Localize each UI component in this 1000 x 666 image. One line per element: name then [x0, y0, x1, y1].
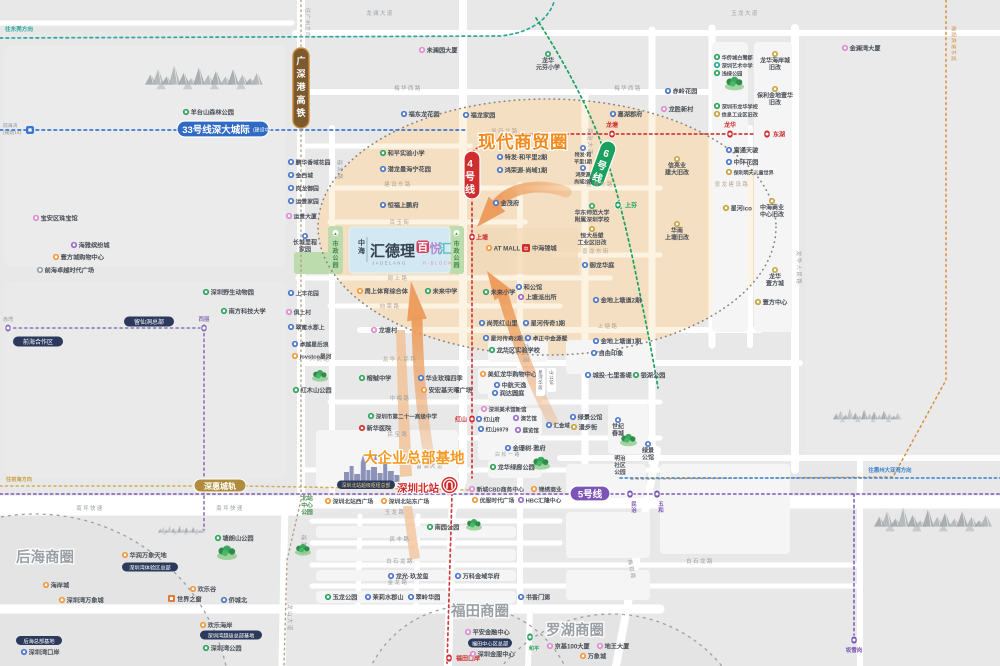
svg-text:南园公园: 南园公园	[435, 523, 460, 531]
svg-text:景龙建设路: 景龙建设路	[715, 180, 749, 188]
svg-text:世纪: 世纪	[612, 423, 624, 431]
svg-text:龙山大道: 龙山大道	[286, 604, 294, 632]
svg-text:赤岭花园: 赤岭花园	[673, 87, 698, 95]
svg-text:信息工业区旧改: 信息工业区旧改	[722, 110, 759, 118]
svg-text:市政公园: 市政公园	[453, 240, 460, 269]
svg-text:梅华西路: 梅华西路	[394, 84, 422, 92]
svg-text:金澜湾大厦: 金澜湾大厦	[849, 44, 882, 52]
svg-text:尚莞红山里: 尚莞红山里	[487, 319, 518, 327]
svg-text:卓正中金源墅: 卓正中金源墅	[533, 334, 568, 342]
svg-text:福田中心区总部: 福田中心区总部	[472, 639, 508, 647]
svg-text:自由印象: 自由印象	[599, 349, 625, 357]
svg-text:红山6979: 红山6979	[486, 425, 509, 433]
svg-text:元芬小学: 元芬小学	[536, 64, 560, 72]
svg-text:未来小学: 未来小学	[490, 288, 516, 296]
svg-text:未澜园大厦: 未澜园大厦	[426, 46, 459, 54]
svg-text:榕臹中学: 榕臹中学	[367, 374, 392, 382]
svg-text:中环花园: 中环花园	[734, 158, 759, 166]
svg-text:龙华: 龙华	[542, 57, 554, 65]
svg-text:往东莞方向: 往东莞方向	[5, 25, 33, 33]
svg-text:旧改: 旧改	[769, 64, 782, 72]
svg-text:深圳美术馆新馆: 深圳美术馆新馆	[489, 405, 527, 413]
svg-text:市政公园: 市政公园	[332, 240, 339, 269]
svg-text:恒福上鹏府: 恒福上鹏府	[388, 201, 420, 209]
svg-text:H-BLOCK: H-BLOCK	[423, 261, 453, 266]
svg-text:深圳北站西广场: 深圳北站西广场	[333, 497, 374, 505]
svg-text:侨城北: 侨城北	[228, 596, 248, 604]
svg-text:(规划14): (规划14)	[3, 129, 22, 136]
svg-text:深圳北站东广场: 深圳北站东广场	[389, 497, 430, 505]
svg-text:汇德理: 汇德理	[370, 242, 415, 260]
svg-text:民丰路: 民丰路	[390, 535, 411, 543]
svg-text:星河ico: 星河ico	[731, 204, 753, 212]
svg-text:玉龙路: 玉龙路	[385, 508, 406, 516]
svg-text:福龙家园: 福龙家园	[470, 111, 496, 119]
svg-text:前海合作区: 前海合作区	[23, 338, 53, 346]
svg-text:现代商贸圈: 现代商贸圈	[478, 132, 568, 152]
svg-text:西丽: 西丽	[198, 315, 210, 323]
svg-text:龙华海岸城: 龙华海岸城	[760, 57, 790, 65]
svg-text:南坪快速: 南坪快速	[76, 504, 104, 512]
svg-text:上塘路: 上塘路	[598, 322, 619, 330]
svg-text:和平实验小学: 和平实验小学	[387, 149, 425, 157]
svg-text:龙华区实验学校: 龙华区实验学校	[496, 346, 541, 354]
svg-text:华南: 华南	[671, 227, 683, 235]
svg-text:广深港高铁: 广深港高铁	[296, 55, 306, 118]
svg-text:城投·七里香堤: 城投·七里香堤	[593, 371, 633, 379]
svg-text:福田口岸: 福田口岸	[455, 655, 480, 663]
svg-text:后海总部基地: 后海总部基地	[23, 637, 54, 645]
svg-text:附属深圳学校: 附属深圳学校	[575, 216, 610, 224]
svg-text:恒大岳塱: 恒大岳塱	[580, 232, 603, 240]
svg-text:华东师范大学: 华东师范大学	[575, 209, 610, 217]
svg-text:往广州方向: 往广州方向	[304, 8, 311, 38]
svg-text:明治社区公园: 明治社区公园	[613, 454, 626, 476]
svg-text:▲: ▲	[454, 231, 458, 236]
svg-text:壹方中心: 壹方中心	[763, 298, 789, 306]
svg-text:福田商圈: 福田商圈	[450, 602, 509, 620]
svg-text:中海锦城: 中海锦城	[532, 245, 558, 253]
svg-text:深圳金服中心: 深圳金服中心	[478, 650, 516, 658]
svg-text:jovstco星河: jovstco星河	[299, 352, 332, 360]
svg-text:万象城: 万象城	[587, 652, 607, 660]
svg-text:华业玫瑰四季: 华业玫瑰四季	[426, 374, 464, 382]
svg-text:工业区旧改: 工业区旧改	[578, 239, 607, 247]
svg-text:富通天骏: 富通天骏	[734, 146, 760, 154]
svg-text:龙光·玖龙玺: 龙光·玖龙玺	[395, 572, 430, 580]
svg-text:龙塘村: 龙塘村	[378, 326, 398, 334]
svg-text:安宏基天曜广场: 安宏基天曜广场	[429, 386, 472, 394]
svg-text:往惠州大亚湾方向: 往惠州大亚湾方向	[868, 466, 911, 474]
svg-text:罗湖商圈: 罗湖商圈	[546, 621, 604, 639]
svg-text:5号线: 5号线	[578, 489, 603, 501]
svg-text:润达圆庭: 润达圆庭	[500, 389, 526, 397]
svg-text:演艺馆: 演艺馆	[521, 414, 538, 422]
svg-text:海岸城: 海岸城	[51, 581, 70, 589]
svg-text:新城CBD商务中心: 新城CBD商务中心	[477, 485, 525, 493]
svg-text:南坪快速: 南坪快速	[216, 504, 244, 512]
svg-text:鸿荣源·尚域1期: 鸿荣源·尚域1期	[505, 166, 548, 174]
svg-text:绿景: 绿景	[642, 447, 654, 455]
svg-text:福东龙花园: 福东龙花园	[408, 110, 440, 118]
svg-text:书香门第: 书香门第	[526, 593, 551, 601]
svg-text:龙胜新村: 龙胜新村	[668, 105, 695, 113]
svg-text:(建设中): (建设中)	[253, 127, 272, 134]
svg-text:深圳湾万象城: 深圳湾万象城	[67, 596, 105, 604]
svg-text:京基100大厦: 京基100大厦	[555, 642, 591, 650]
svg-text:优服时代广场: 优服时代广场	[480, 496, 515, 504]
svg-text:AT MALL: AT MALL	[494, 245, 521, 252]
svg-text:岗龙御园: 岗龙御园	[296, 184, 319, 192]
svg-text:后海商圈: 后海商圈	[16, 548, 74, 566]
svg-text:茉莉水郡山: 茉莉水郡山	[373, 593, 404, 601]
svg-text:金地上塘道2期: 金地上塘道2期	[600, 296, 642, 304]
svg-text:壹方城: 壹方城	[766, 280, 784, 288]
svg-text:金西城: 金西城	[295, 171, 314, 179]
svg-text:保利金地壹华: 保利金地壹华	[756, 92, 793, 100]
svg-text:金珊树·雅府: 金珊树·雅府	[512, 444, 547, 452]
svg-text:家园: 家园	[299, 246, 311, 254]
svg-text:向荣路: 向荣路	[380, 302, 401, 310]
svg-text:民治: 民治	[631, 500, 637, 514]
svg-text:深圳湾超级总部基地: 深圳湾超级总部基地	[208, 631, 255, 639]
svg-text:建大旧改: 建大旧改	[665, 169, 690, 177]
svg-text:海雅缤纷城: 海雅缤纷城	[79, 241, 111, 249]
svg-text:梅观高速东延: 梅观高速东延	[950, 26, 957, 62]
svg-text:龙华人民路: 龙华人民路	[795, 251, 803, 285]
svg-text:信亮业: 信亮业	[668, 162, 686, 170]
svg-text:嘉湖郡府: 嘉湖郡府	[617, 110, 644, 118]
svg-text:景龙东街: 景龙东街	[582, 247, 610, 255]
svg-text:赤湾: 赤湾	[3, 316, 13, 323]
svg-text:往前海方向: 往前海方向	[6, 475, 32, 483]
svg-text:中海商业: 中海商业	[760, 204, 784, 212]
svg-text:地王大厦: 地王大厦	[605, 642, 631, 650]
svg-text:和平: 和平	[529, 644, 540, 652]
svg-text:深圳北站超级枢纽总部: 深圳北站超级枢纽总部	[342, 482, 391, 489]
svg-text:长城里程: 长城里程	[293, 239, 317, 247]
svg-text:公馆: 公馆	[642, 454, 654, 462]
svg-text:上塘: 上塘	[476, 234, 488, 242]
svg-text:白石龙路: 白石龙路	[686, 557, 714, 565]
svg-text:山公馆: 山公馆	[549, 369, 554, 386]
svg-text:红山: 红山	[455, 416, 467, 424]
svg-text:梅华西路: 梅华西路	[614, 84, 642, 92]
svg-text:中: 中	[523, 246, 528, 253]
svg-text:周上路: 周上路	[388, 274, 409, 282]
svg-text:白石龙路: 白石龙路	[386, 557, 414, 565]
svg-text:翠蜜水郡上: 翠蜜水郡上	[296, 323, 325, 331]
svg-text:旧改: 旧改	[769, 99, 782, 107]
svg-text:中海: 中海	[358, 238, 365, 255]
svg-text:龙华: 龙华	[769, 273, 781, 281]
svg-text:星河华居: 星河华居	[538, 370, 543, 391]
svg-text:春城: 春城	[611, 430, 624, 438]
svg-text:红木山公园: 红木山公园	[301, 386, 332, 394]
svg-text:万科金域华府: 万科金域华府	[462, 572, 501, 580]
svg-text:世界之窗: 世界之窗	[177, 596, 202, 604]
svg-text:星河传奇2期: 星河传奇2期	[491, 334, 523, 342]
svg-text:汇金域: 汇金域	[554, 421, 571, 429]
svg-text:前海湾: 前海湾	[3, 122, 18, 129]
svg-text:未来中学: 未来中学	[432, 287, 458, 295]
svg-text:欢乐谷: 欢乐谷	[197, 585, 217, 593]
svg-text:龙澜大道: 龙澜大道	[366, 9, 394, 17]
svg-text:南方科技大学: 南方科技大学	[229, 307, 266, 315]
svg-text:33号线深大城际: 33号线深大城际	[182, 124, 250, 136]
svg-text:壹方城购物中心: 壹方城购物中心	[61, 253, 105, 261]
svg-text:龙塘: 龙塘	[606, 121, 618, 129]
svg-text:鹏华香域花园: 鹏华香域花园	[296, 158, 331, 166]
svg-text:平安金融中心: 平安金融中心	[473, 628, 511, 636]
svg-text:·: ·	[410, 244, 413, 255]
svg-text:华侨城白鹭郡: 华侨城白鹭郡	[722, 53, 754, 61]
svg-text:欢乐海岸: 欢乐海岸	[207, 621, 234, 629]
svg-text:鸿荣源: 鸿荣源	[575, 172, 590, 179]
svg-text:留仙洞总部: 留仙洞总部	[134, 318, 164, 326]
svg-text:浅绿公园: 浅绿公园	[722, 69, 743, 77]
svg-text:深圳艺术中学: 深圳艺术中学	[722, 61, 753, 69]
svg-text:宝安区珠宝馆: 宝安区珠宝馆	[41, 214, 78, 222]
svg-text:大企业总部基地: 大企业总部基地	[363, 449, 465, 467]
svg-text:华润万象天地: 华润万象天地	[130, 551, 168, 559]
svg-text:周上体育综合体: 周上体育综合体	[365, 287, 409, 295]
svg-text:金茂府: 金茂府	[500, 199, 520, 207]
svg-text:中心旧改: 中心旧改	[760, 211, 785, 219]
svg-text:深圳湾公园: 深圳湾公园	[211, 644, 242, 652]
svg-text:玉龙大道: 玉龙大道	[731, 9, 759, 17]
svg-text:龙华: 龙华	[724, 121, 736, 129]
svg-text:中梅路: 中梅路	[390, 394, 411, 402]
svg-text:展览馆: 展览馆	[523, 426, 540, 434]
svg-text:红山府: 红山府	[484, 415, 501, 423]
svg-text:北站中心公园: 北站中心公园	[301, 494, 313, 516]
svg-text:龙华绿廊公园: 龙华绿廊公园	[497, 463, 535, 471]
svg-text:深圳北站: 深圳北站	[397, 482, 439, 495]
svg-text:汇: 汇	[439, 242, 452, 256]
svg-text:锦绣商业: 锦绣商业	[539, 485, 562, 493]
svg-text:深圳市龙华学校: 深圳市龙华学校	[722, 102, 759, 110]
svg-text:百: 百	[417, 242, 428, 254]
svg-text:潜龙曼海宁花园: 潜龙曼海宁花园	[388, 165, 431, 173]
svg-text:保利明天儿童世界: 保利明天儿童世界	[733, 169, 775, 176]
svg-text:金地上塘道1期: 金地上塘道1期	[600, 337, 642, 345]
svg-text:东湖: 东湖	[773, 131, 785, 139]
svg-text:深圳湾口岸: 深圳湾口岸	[29, 648, 61, 656]
svg-text:坂雪岗: 坂雪岗	[846, 646, 863, 654]
svg-text:翠岭华园: 翠岭华园	[416, 593, 441, 601]
svg-text:美虹龙华购物中心: 美虹龙华购物中心	[488, 370, 538, 378]
svg-text:前海卓越时代广场: 前海卓越时代广场	[45, 266, 95, 274]
svg-text:上塘派出所: 上塘派出所	[526, 293, 558, 301]
svg-text:御龙华庭: 御龙华庭	[589, 261, 616, 269]
svg-text:百玉街: 百玉街	[390, 218, 411, 226]
svg-text:深惠城轨: 深惠城轨	[204, 481, 236, 491]
svg-text:绿景公馆: 绿景公馆	[578, 413, 603, 421]
svg-text:特发·和平里2期: 特发·和平里2期	[505, 153, 548, 161]
svg-text:龙华人民路: 龙华人民路	[383, 355, 417, 363]
svg-text:星河传奇1期: 星河传奇1期	[531, 319, 565, 327]
svg-text:玉龙公园: 玉龙公园	[333, 593, 358, 601]
svg-text:塘朗山公园: 塘朗山公园	[223, 534, 254, 542]
svg-text:和公馆: 和公馆	[523, 283, 543, 291]
svg-text:银湖公园: 银湖公园	[641, 371, 666, 379]
svg-text:俱上村: 俱上村	[293, 308, 312, 316]
svg-text:HBC汇隆中心: HBC汇隆中心	[526, 496, 562, 504]
svg-text:上塘旧改: 上塘旧改	[665, 234, 690, 242]
svg-text:上芬: 上芬	[625, 202, 638, 210]
svg-text:JADELANG: JADELANG	[372, 261, 407, 266]
svg-text:▲: ▲	[333, 231, 337, 236]
svg-text:五和: 五和	[658, 501, 664, 514]
svg-text:新华医院: 新华医院	[367, 424, 393, 432]
svg-text:特发·和: 特发·和	[575, 152, 592, 159]
svg-text:福龙路: 福龙路	[336, 160, 344, 181]
svg-text:深圳湾体验区总部: 深圳湾体验区总部	[129, 563, 171, 571]
svg-text:尚域2期: 尚域2期	[574, 179, 592, 186]
svg-text:漫步街: 漫步街	[579, 423, 598, 431]
svg-text:深圳市第二十一高级中学: 深圳市第二十一高级中学	[376, 412, 438, 420]
svg-text:深圳野生动物园: 深圳野生动物园	[211, 288, 254, 296]
svg-text:羊台山森林公园: 羊台山森林公园	[191, 108, 234, 116]
svg-text:上丰花园: 上丰花园	[296, 289, 319, 297]
svg-text:建设东路: 建设东路	[384, 180, 412, 188]
svg-text:中航天逸: 中航天逸	[502, 381, 528, 389]
svg-text:运景家园: 运景家园	[296, 197, 319, 205]
svg-text:卓越星后浪: 卓越星后浪	[300, 340, 329, 348]
svg-text:平里1期: 平里1期	[574, 159, 592, 166]
svg-text:运景大厦: 运景大厦	[294, 212, 317, 220]
